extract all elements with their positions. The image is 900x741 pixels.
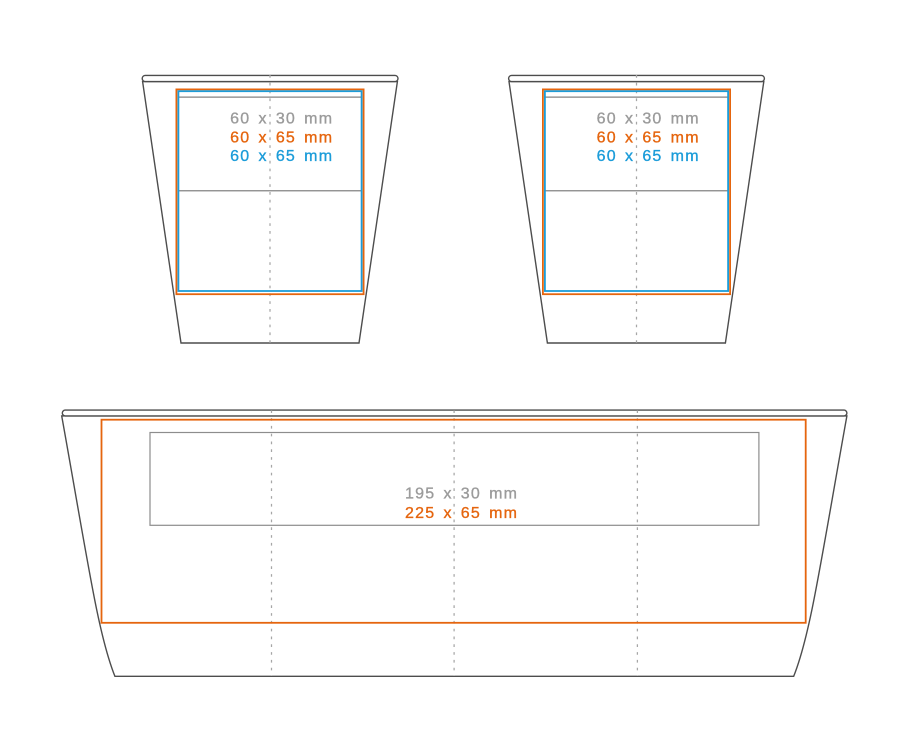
svg-text:60 x 30 mm: 60 x 30 mm xyxy=(230,110,333,127)
svg-text:225 x 65 mm: 225 x 65 mm xyxy=(405,505,518,522)
svg-text:60 x 65 mm: 60 x 65 mm xyxy=(597,148,700,165)
svg-text:60 x 65 mm: 60 x 65 mm xyxy=(230,129,333,146)
svg-text:60 x 65 mm: 60 x 65 mm xyxy=(230,148,333,165)
svg-text:60 x 65 mm: 60 x 65 mm xyxy=(597,129,700,146)
svg-text:60 x 30 mm: 60 x 30 mm xyxy=(597,110,700,127)
svg-text:195 x 30 mm: 195 x 30 mm xyxy=(405,486,518,503)
